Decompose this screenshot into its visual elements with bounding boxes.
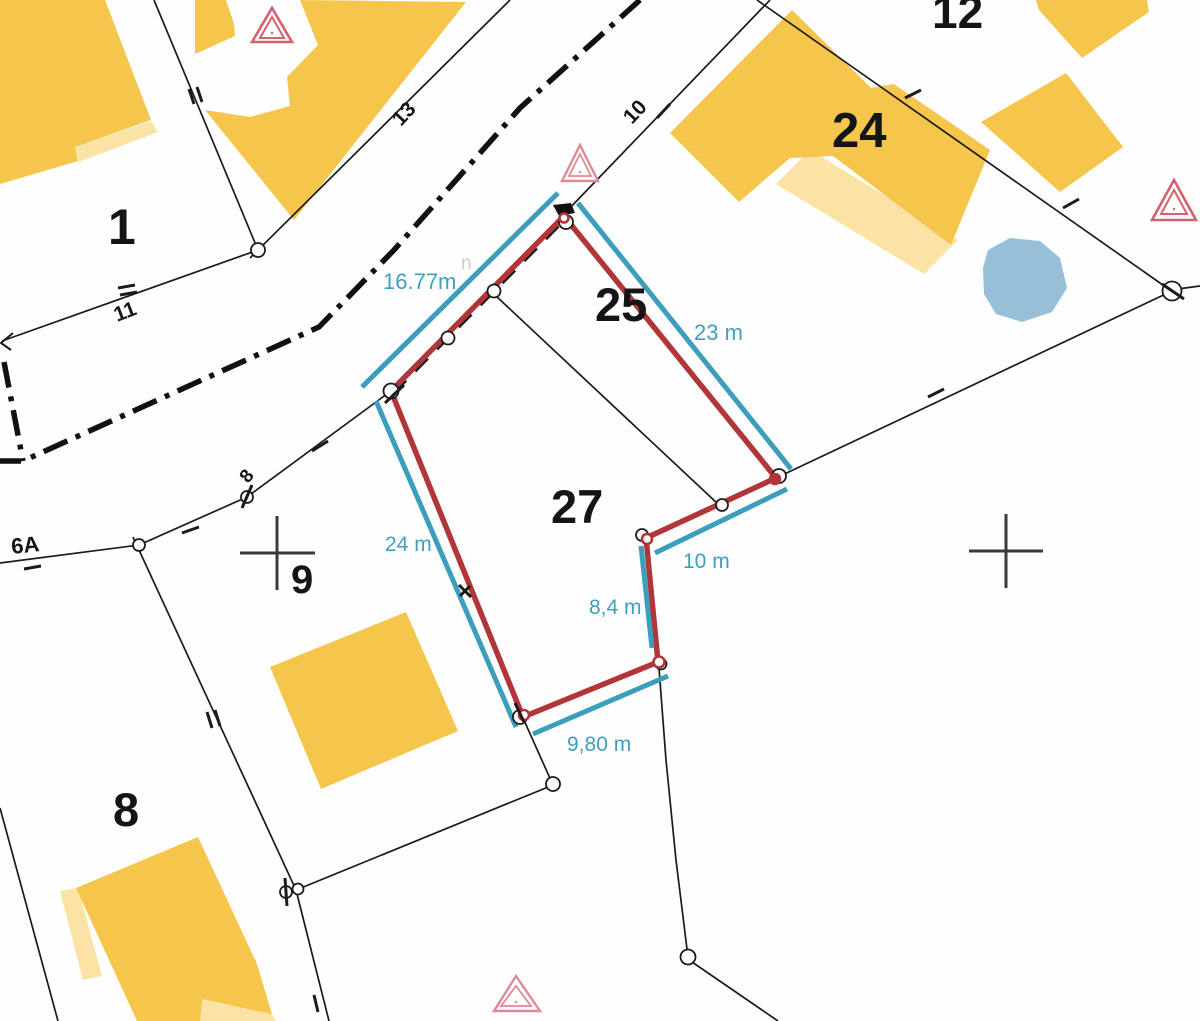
svg-text:n: n bbox=[461, 253, 472, 274]
svg-text:12: 12 bbox=[932, 0, 983, 38]
svg-text:24 m: 24 m bbox=[385, 533, 432, 556]
svg-text:16.77m: 16.77m bbox=[383, 269, 456, 294]
svg-text:8,4 m: 8,4 m bbox=[589, 596, 642, 619]
svg-text:25: 25 bbox=[595, 278, 647, 331]
svg-text:1: 1 bbox=[108, 199, 136, 255]
svg-text:9: 9 bbox=[291, 558, 313, 602]
svg-text:9,80 m: 9,80 m bbox=[567, 733, 631, 756]
svg-text:10 m: 10 m bbox=[683, 550, 730, 573]
svg-text:27: 27 bbox=[551, 480, 603, 533]
svg-text:6A: 6A bbox=[10, 531, 41, 559]
svg-text:8: 8 bbox=[113, 783, 139, 836]
svg-text:24: 24 bbox=[832, 104, 887, 158]
svg-text:23 m: 23 m bbox=[694, 320, 743, 345]
